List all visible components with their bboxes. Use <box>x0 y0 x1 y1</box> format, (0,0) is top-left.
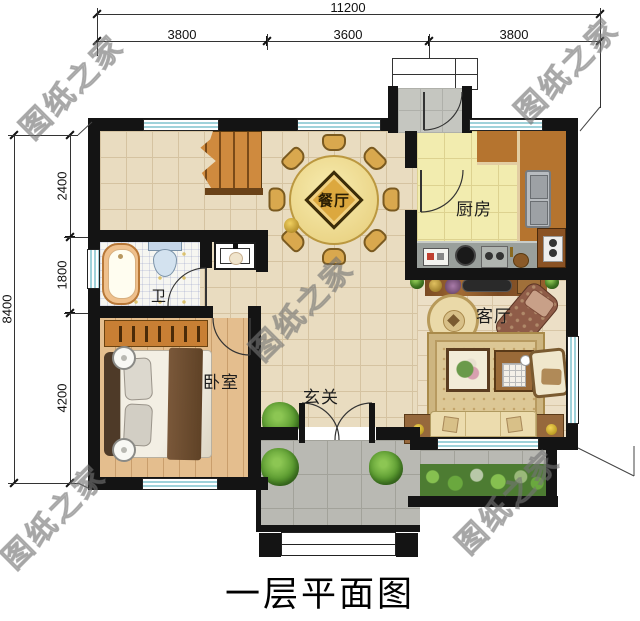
indicator <box>437 253 444 260</box>
leader-line <box>578 448 634 476</box>
dim-ext <box>429 34 430 60</box>
dining-chair <box>383 188 400 212</box>
dining-chair <box>269 188 286 212</box>
stool-center <box>121 447 127 453</box>
dial <box>549 239 557 247</box>
sink-basin <box>530 201 548 225</box>
sink-basin <box>530 175 548 199</box>
tea-tray <box>502 363 526 387</box>
step-line <box>282 544 395 545</box>
room-label-bathroom: 卫 <box>151 285 167 306</box>
kitchen-cabinet <box>537 228 566 268</box>
dim-top-total: 11200 <box>330 0 365 15</box>
coffee-table-floral <box>446 348 490 392</box>
step-line <box>393 74 477 75</box>
gold-dish <box>429 279 442 292</box>
faucet <box>510 247 513 257</box>
window <box>143 119 219 131</box>
indicator <box>427 253 434 260</box>
wall-segment <box>88 118 100 490</box>
step-line <box>455 59 456 89</box>
room-label-bedroom: 卧室 <box>203 368 239 393</box>
burner <box>485 252 493 260</box>
plant <box>369 451 403 485</box>
floor-plan: 11200 3800 3600 3800 8400 2400 1800 4200 <box>0 0 640 621</box>
step-pillar <box>259 533 281 557</box>
dim-left-seg-2: 1800 <box>55 261 70 290</box>
wall-segment <box>405 131 417 168</box>
wall-segment <box>388 86 398 133</box>
wall-segment <box>256 525 420 532</box>
dim-left-seg-3: 4200 <box>55 384 70 413</box>
flower-decor <box>445 278 461 294</box>
watermark: 图纸之家 <box>0 453 114 577</box>
hangers <box>109 326 203 342</box>
dining-chair <box>322 134 346 151</box>
leader-line <box>580 107 600 131</box>
dim-top-seg-3: 3800 <box>500 27 529 42</box>
window <box>87 249 100 289</box>
basin <box>229 252 243 265</box>
dim-ext <box>267 34 268 50</box>
window <box>142 478 218 490</box>
lamp <box>546 424 557 435</box>
dial <box>549 249 557 257</box>
plan-title: 一层平面图 <box>0 566 640 617</box>
dim-left-total: 8400 <box>0 295 15 324</box>
bathtub <box>102 243 140 305</box>
wall-segment <box>88 306 213 318</box>
dim-ext <box>64 313 88 314</box>
window <box>437 438 539 450</box>
blanket <box>167 348 203 461</box>
basin-bowl <box>513 253 529 268</box>
wall-segment <box>256 230 268 272</box>
kitchen-counter-bottom <box>417 241 543 268</box>
armchair-pillow <box>541 368 562 385</box>
tv <box>462 279 512 292</box>
coffee-table-tea <box>494 350 534 392</box>
wall-segment <box>88 230 212 242</box>
wall-segment <box>256 440 261 530</box>
bedside-stool <box>112 438 136 462</box>
window <box>297 119 381 131</box>
entry-steps <box>281 532 396 556</box>
window <box>567 336 579 424</box>
wok-burner <box>455 245 476 266</box>
watermark: 图纸之家 <box>503 6 627 130</box>
room-label-dining: 餐厅 <box>318 190 350 211</box>
drain <box>118 254 123 259</box>
sofa-pillow <box>506 416 523 433</box>
gas-hob <box>481 246 508 268</box>
sofa-pillow <box>442 416 459 433</box>
faucet <box>233 243 238 249</box>
armchair <box>529 347 570 399</box>
stool-center <box>121 355 127 361</box>
dim-top-seg-2: 3600 <box>334 27 363 42</box>
bedside-stool <box>112 346 136 370</box>
dim-top-seg-1: 3800 <box>168 27 197 42</box>
kitchen-sink-unit <box>525 170 551 228</box>
control-panel <box>423 248 449 266</box>
wall-segment <box>405 268 578 280</box>
wardrobe <box>104 320 208 347</box>
room-label-kitchen: 厨房 <box>456 195 492 220</box>
appliance <box>543 236 563 262</box>
wall-segment <box>200 230 212 268</box>
pendant-lamp <box>284 218 299 233</box>
stair-base <box>205 188 263 195</box>
wall-segment <box>256 427 298 440</box>
back-vestibule-floor <box>398 88 462 133</box>
dim-left-seg-1: 2400 <box>55 172 70 201</box>
room-label-foyer: 玄关 <box>303 383 339 408</box>
burner <box>496 252 504 260</box>
dim-ext <box>64 237 88 238</box>
step-pillar <box>396 533 418 557</box>
vanity-sink <box>214 242 256 270</box>
room-label-living: 客厅 <box>476 302 512 327</box>
